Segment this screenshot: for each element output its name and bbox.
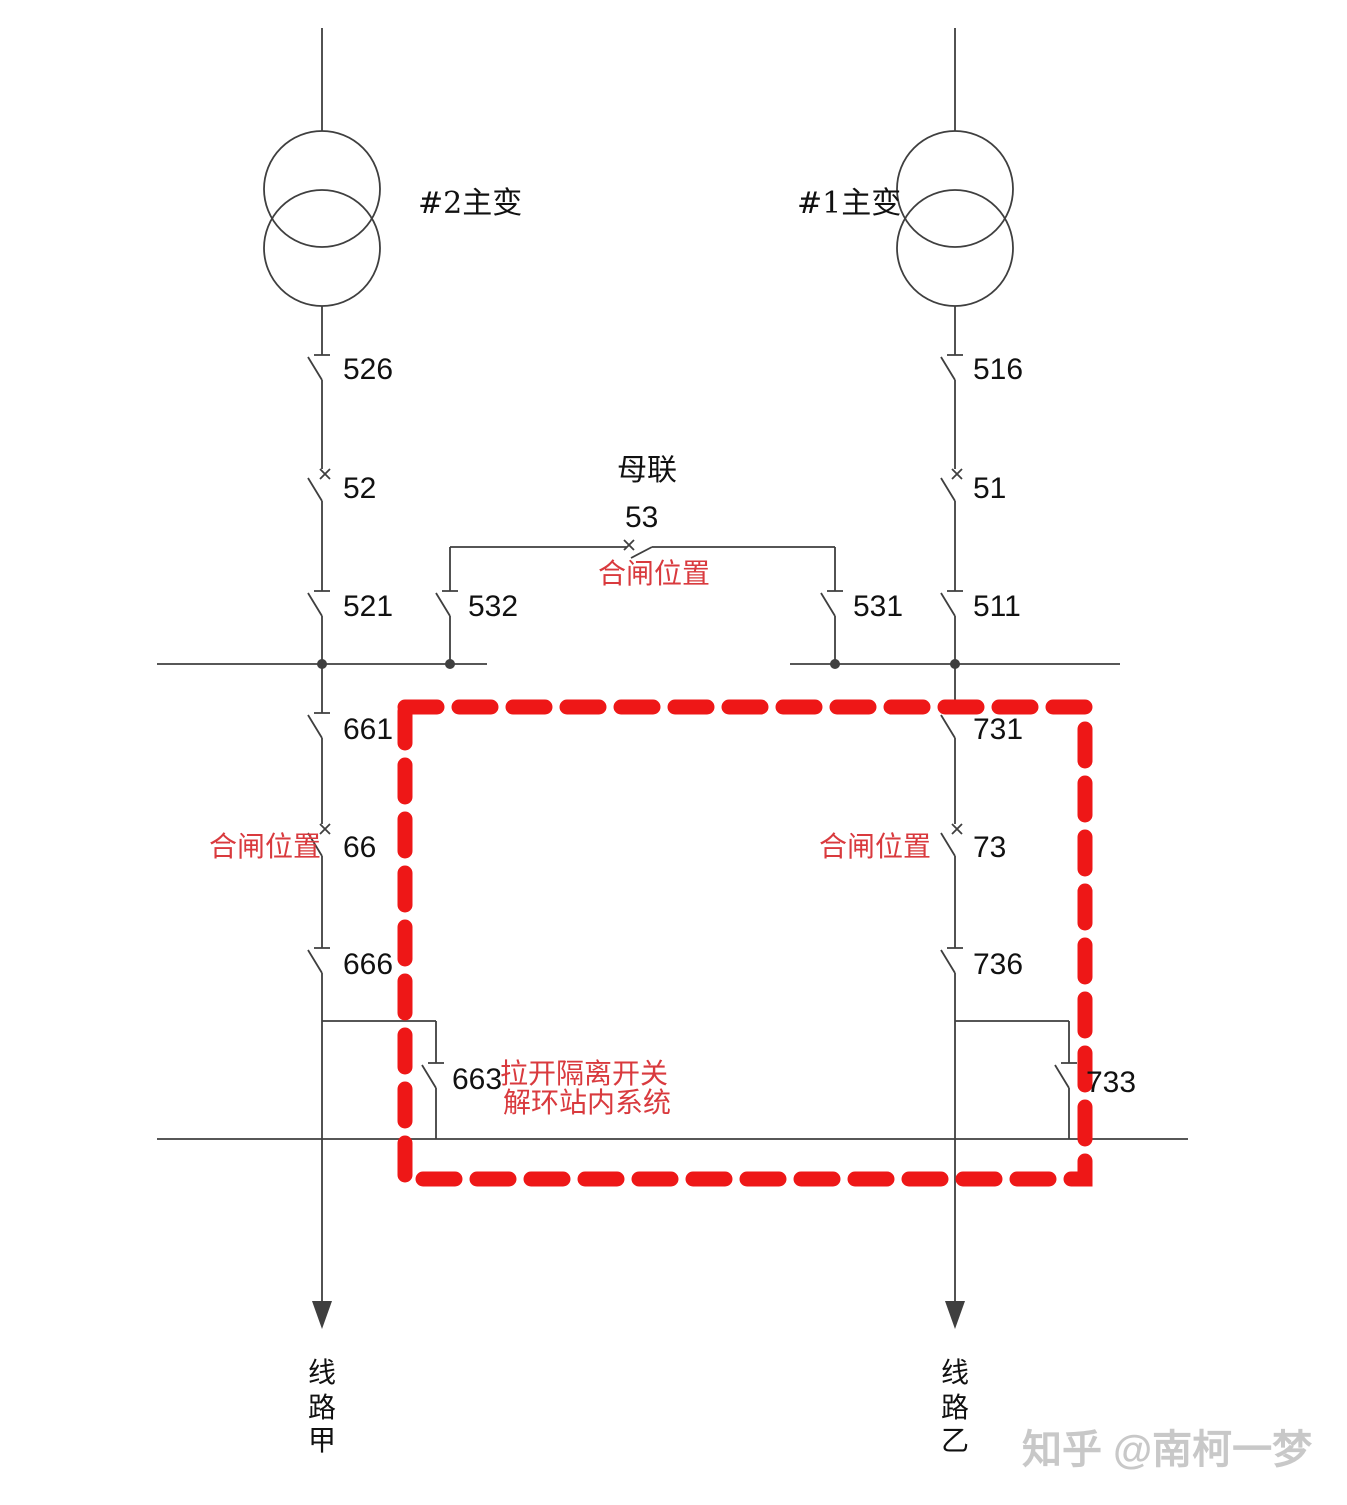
- single-line-diagram: #2主变 #1主变 526 52 521 532 母联 53 531 511 5…: [0, 0, 1347, 1505]
- disconnector-661-symbol: [308, 664, 330, 824]
- line-a-arrow-icon: [312, 1301, 332, 1329]
- breaker-52-symbol: [308, 469, 330, 591]
- transformer-2-symbol: [264, 28, 380, 355]
- annotation-closed-position-tie: 合闸位置: [598, 557, 710, 590]
- label-breaker-73: 73: [973, 831, 1006, 864]
- label-switch-521: 521: [343, 590, 393, 623]
- breaker-51-symbol: [941, 469, 962, 591]
- label-breaker-66: 66: [343, 831, 376, 864]
- label-switch-531: 531: [853, 590, 903, 623]
- annotation-closed-position-left: 合闸位置: [209, 830, 321, 863]
- label-transformer-1: #1主变: [797, 186, 901, 221]
- label-breaker-51: 51: [973, 472, 1006, 505]
- disconnector-526-symbol: [308, 355, 330, 469]
- disconnector-663-symbol: [322, 1021, 444, 1139]
- label-breaker-52: 52: [343, 472, 376, 505]
- label-bus-tie-name: 母联: [617, 453, 677, 488]
- label-switch-511: 511: [973, 590, 1021, 623]
- label-switch-532: 532: [468, 590, 518, 623]
- transformer-1-symbol: [897, 28, 1013, 355]
- disconnector-516-symbol: [941, 355, 963, 469]
- label-switch-661: 661: [343, 713, 393, 746]
- label-line-b-char3: 乙: [941, 1424, 969, 1457]
- disconnector-532-symbol: [436, 547, 458, 664]
- disconnector-531-symbol: [821, 547, 843, 664]
- disconnector-733-symbol: [955, 1021, 1077, 1139]
- label-line-a-char3: 甲: [308, 1424, 336, 1457]
- annotation-closed-position-right: 合闸位置: [819, 830, 931, 863]
- label-line-b-char1: 线: [941, 1356, 969, 1389]
- label-breaker-53: 53: [625, 501, 658, 534]
- disconnector-521-symbol: [308, 591, 330, 664]
- bus-tie-breaker-53-symbol: [450, 540, 835, 558]
- disconnector-736-symbol: [941, 948, 963, 1303]
- label-switch-516: 516: [973, 353, 1023, 386]
- zhihu-watermark: 知乎 @南柯一梦: [1022, 1428, 1312, 1472]
- label-switch-663: 663: [452, 1063, 502, 1096]
- label-switch-526: 526: [343, 353, 393, 386]
- disconnector-731-symbol: [941, 664, 963, 824]
- line-b-arrow-icon: [945, 1301, 965, 1329]
- label-line-b-char2: 路: [941, 1391, 969, 1424]
- label-line-a-char1: 线: [308, 1356, 336, 1389]
- disconnector-511-symbol: [941, 591, 963, 664]
- label-feeder-line-a: 线 路 甲: [308, 1356, 336, 1457]
- label-switch-736: 736: [973, 948, 1023, 981]
- label-switch-666: 666: [343, 948, 393, 981]
- annotation-open-disconnector-line2: 解环站内系统: [503, 1086, 671, 1119]
- breaker-73-symbol: [941, 824, 962, 948]
- label-feeder-line-b: 线 路 乙: [941, 1356, 969, 1457]
- label-line-a-char2: 路: [308, 1391, 336, 1424]
- label-switch-733: 733: [1086, 1066, 1136, 1099]
- disconnector-666-symbol: [308, 948, 330, 1303]
- label-switch-731: 731: [973, 713, 1023, 746]
- diagram-canvas: #2主变 #1主变 526 52 521 532 母联 53 531 511 5…: [0, 0, 1347, 1505]
- label-transformer-2: #2主变: [418, 186, 522, 221]
